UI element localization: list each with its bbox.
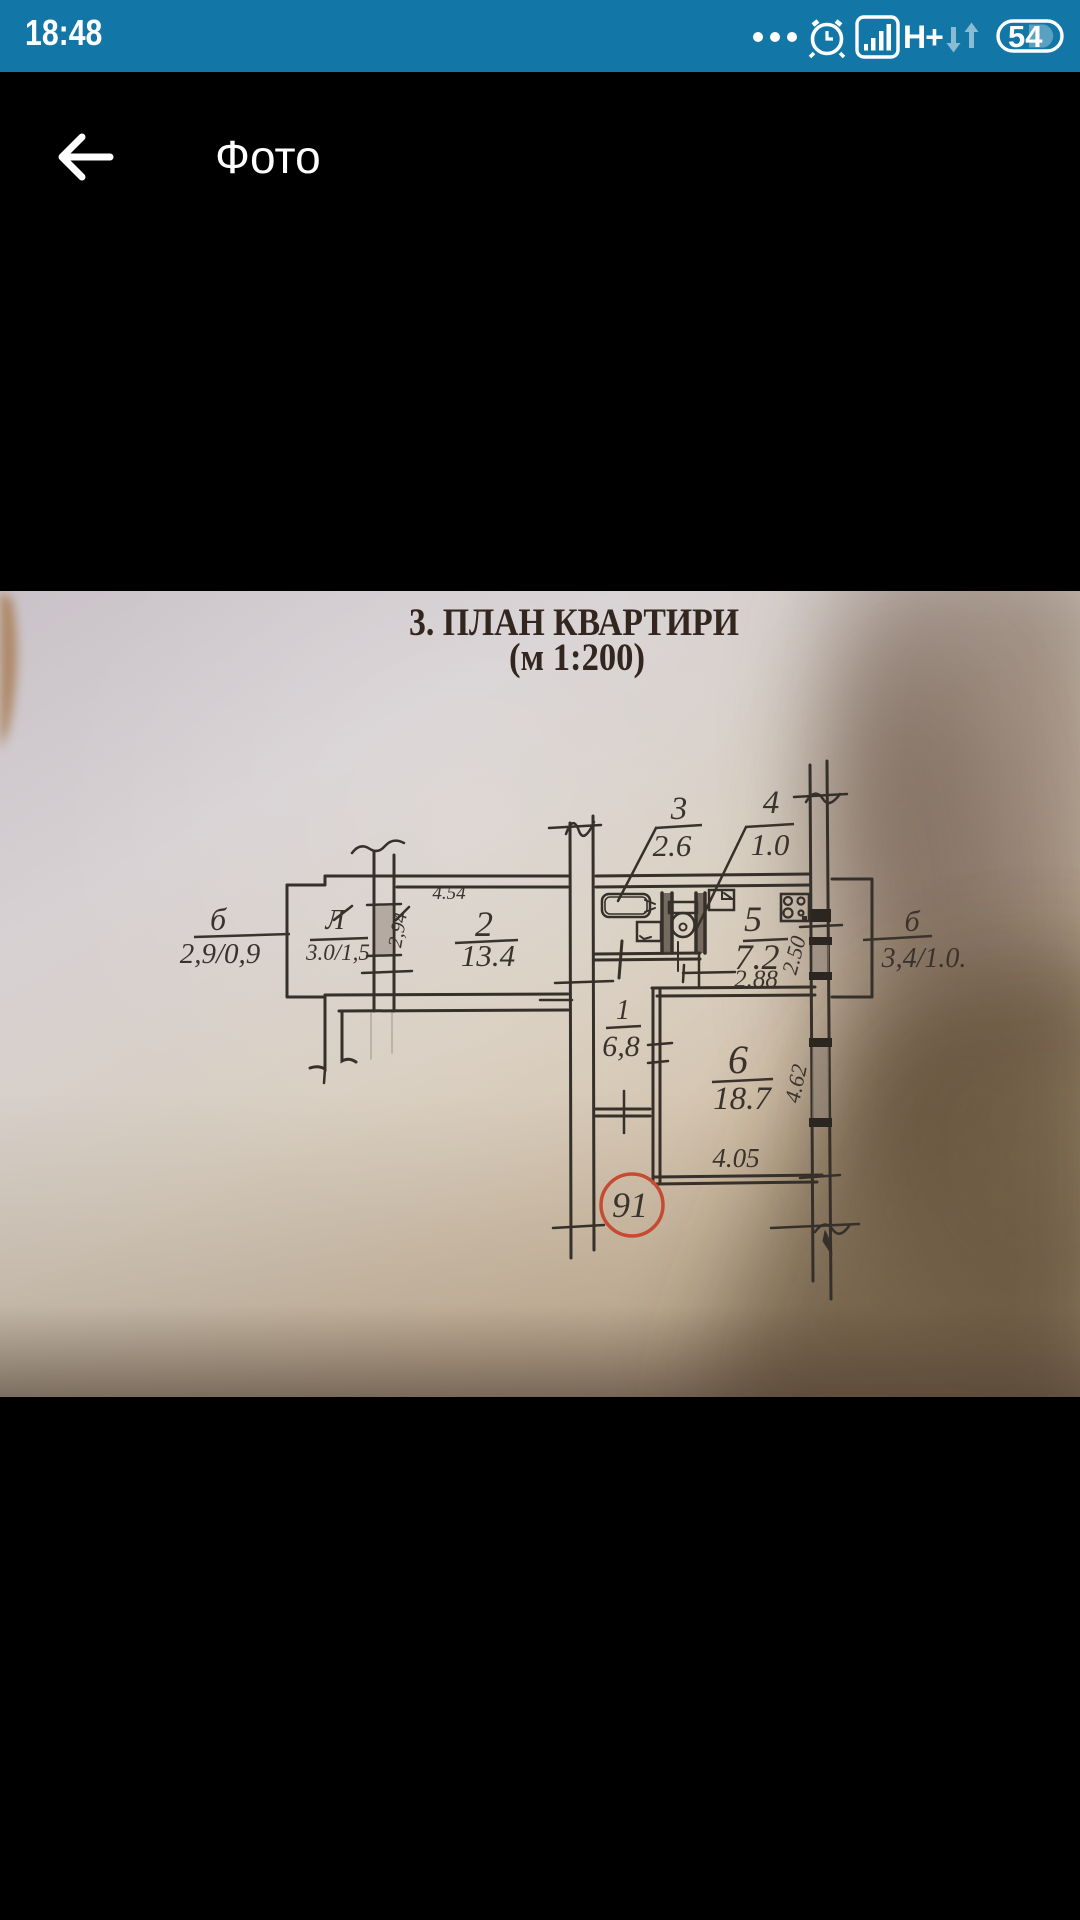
svg-text:6,8: 6,8 bbox=[602, 1030, 640, 1063]
svg-text:H+: H+ bbox=[903, 19, 943, 55]
svg-text:б: б bbox=[904, 905, 920, 938]
svg-text:18.7: 18.7 bbox=[713, 1081, 772, 1117]
svg-text:54: 54 bbox=[1008, 19, 1043, 54]
svg-text:Л: Л bbox=[325, 905, 347, 936]
svg-text:б: б bbox=[210, 901, 227, 937]
svg-text:6: 6 bbox=[728, 1037, 748, 1082]
svg-text:1.0: 1.0 bbox=[751, 827, 790, 862]
svg-text:91: 91 bbox=[612, 1185, 648, 1225]
svg-text:4.54: 4.54 bbox=[432, 883, 466, 904]
svg-text:1: 1 bbox=[616, 995, 630, 1026]
svg-text:4: 4 bbox=[763, 785, 780, 821]
svg-text:2,9/0,9: 2,9/0,9 bbox=[180, 938, 261, 970]
svg-text:13.4: 13.4 bbox=[461, 938, 515, 973]
svg-text:5: 5 bbox=[744, 899, 762, 939]
svg-text:3,4/1.0.: 3,4/1.0. bbox=[881, 943, 967, 974]
svg-text:3: 3 bbox=[670, 791, 688, 827]
svg-text:3.0/1,5: 3.0/1,5 bbox=[305, 940, 370, 965]
svg-text:2.88: 2.88 bbox=[734, 966, 778, 993]
svg-text:4.05: 4.05 bbox=[712, 1143, 759, 1173]
svg-text:(м 1:200): (м 1:200) bbox=[509, 636, 645, 679]
svg-text:2.6: 2.6 bbox=[653, 828, 692, 863]
